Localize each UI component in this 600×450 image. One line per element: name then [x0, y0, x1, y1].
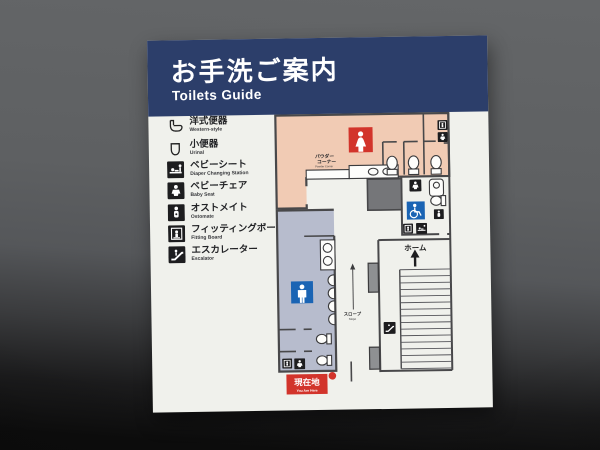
- baby-seat-icon: [409, 179, 421, 191]
- legend-item-baby-seat: ベビーチェア Baby Seat: [167, 181, 247, 199]
- legend-label-en: Western-style: [189, 127, 227, 133]
- western-toilet-icon: [431, 196, 446, 206]
- ostomate-icon: [434, 209, 444, 219]
- legend-item-escalator: エスカレーター Escalator: [168, 245, 258, 263]
- pillar: [369, 347, 379, 369]
- sink-icon: [320, 240, 335, 270]
- legend-label-jp: ベビーシート: [190, 160, 248, 170]
- escalator-icon: [384, 322, 396, 334]
- fitting-board-icon: [437, 120, 447, 130]
- legend-label-en: Diaper Changing Station: [190, 171, 248, 177]
- legend-label-jp: 洋式便器: [189, 116, 227, 126]
- you-are-here-label-jp: 現在地: [294, 377, 320, 387]
- sign-title-jp: お手洗ご案内: [170, 50, 339, 90]
- fitting-board-icon: [168, 225, 185, 242]
- you-are-here-dot: [329, 372, 337, 380]
- fitting-board-icon: [403, 224, 413, 234]
- fitting-board-icon: [282, 358, 292, 368]
- legend-item-ostomate: オストメイト Ostomate: [168, 203, 248, 221]
- powder-counter: [306, 170, 349, 180]
- ostomate-fixture: [429, 179, 443, 196]
- western-toilet-icon: [387, 155, 442, 174]
- pillar: [368, 263, 378, 292]
- diaper-changing-station-icon: [416, 223, 427, 234]
- legend-item-urinal: 小便器 Urinal: [167, 140, 219, 158]
- ostomate-icon: [168, 204, 185, 221]
- you-are-here-badge: 現在地 You Are Here: [286, 374, 327, 395]
- legend-label-jp: オストメイト: [191, 203, 248, 213]
- powder-corner-label-en: Powder Corner: [315, 164, 333, 168]
- legend-label-en: Baby Seat: [190, 192, 247, 198]
- legend-label-en: Ostomate: [191, 214, 248, 220]
- you-are-here-label-en: You Are Here: [297, 389, 318, 393]
- outer-right-wall: [448, 113, 452, 370]
- urinal-icon: [167, 140, 184, 157]
- diaper-changing-station-icon: [167, 161, 184, 178]
- sign-title-en: Toilets Guide: [172, 87, 262, 103]
- legend-item-diaper-station: ベビーシート Diaper Changing Station: [167, 160, 249, 178]
- service-block: [367, 179, 401, 211]
- baby-seat-icon: [167, 182, 184, 199]
- legend-item-western-toilet: 洋式便器 Western-style: [166, 116, 227, 134]
- legend-label-jp: エスカレーター: [191, 245, 258, 256]
- western-toilet-icon: [166, 117, 183, 134]
- baby-seat-icon: [294, 358, 305, 369]
- legend-label-en: Escalator: [192, 256, 259, 262]
- escalator-icon: [168, 246, 185, 263]
- legend-label-jp: ベビーチェア: [190, 181, 247, 191]
- baby-seat-icon: [438, 132, 448, 142]
- toilets-guide-sign: お手洗ご案内 Toilets Guide 洋式便器 Western-style …: [147, 35, 493, 412]
- staircase: [400, 269, 453, 369]
- floor-map: ホーム スロープ Slope パウダー コーナー Powder Corner: [260, 94, 479, 411]
- slope-arrow-icon: [350, 263, 356, 309]
- legend-label-en: Urinal: [190, 151, 219, 156]
- legend-label-jp: 小便器: [190, 140, 219, 150]
- slope-label-en: Slope: [349, 317, 357, 321]
